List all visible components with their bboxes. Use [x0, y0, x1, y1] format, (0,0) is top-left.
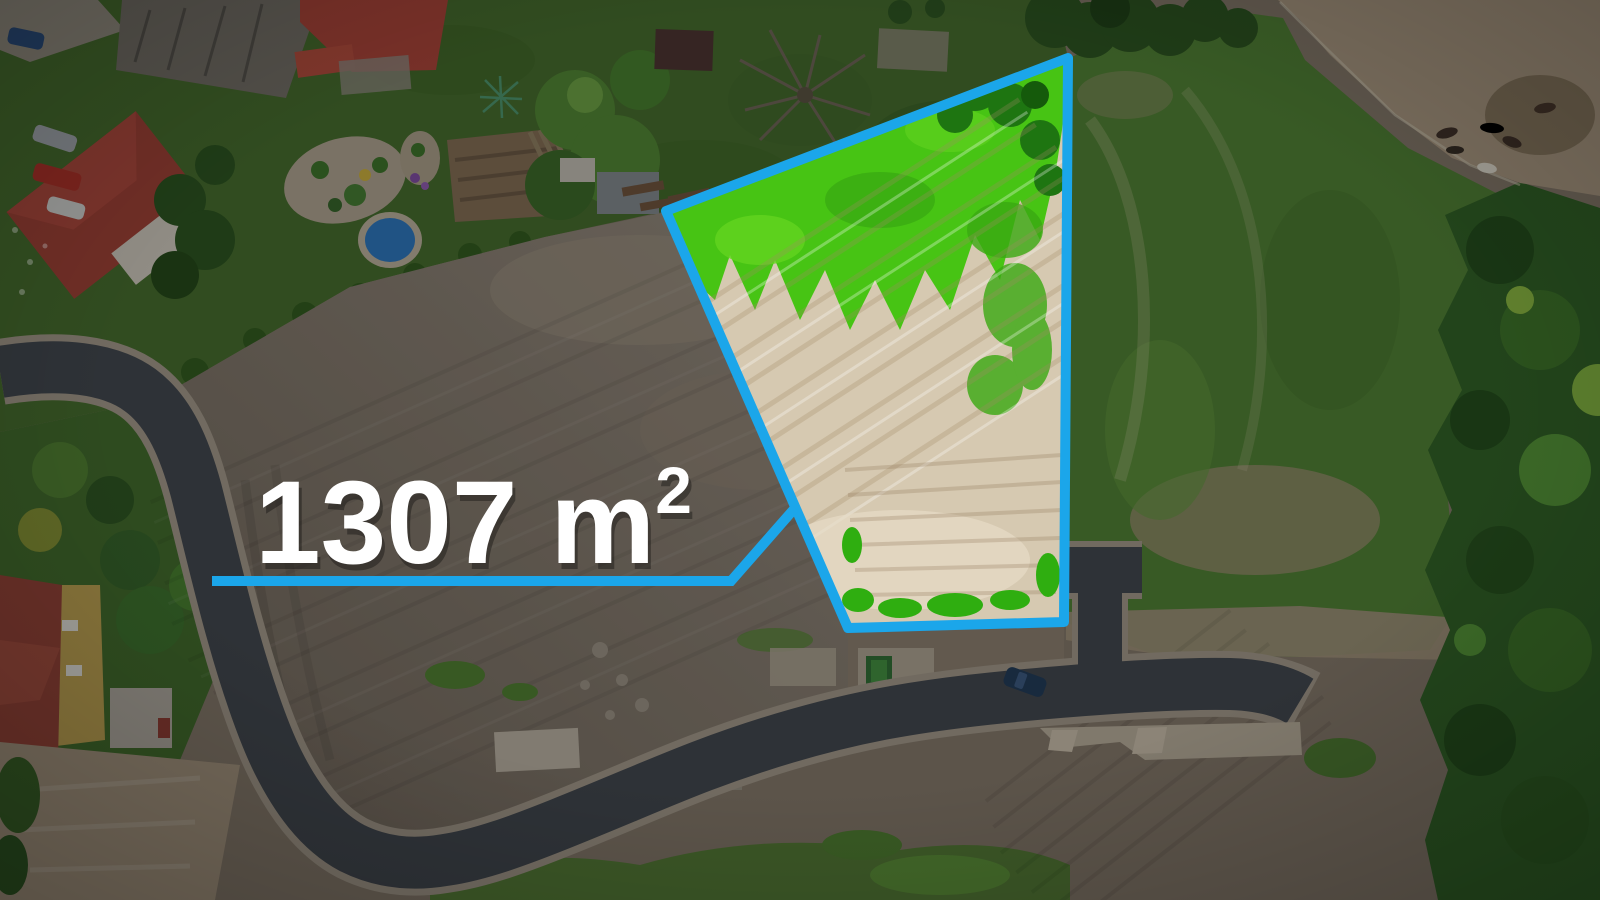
vignette: [0, 0, 1600, 900]
aerial-photo: 1307 m2 1307 m2: [0, 0, 1600, 900]
land-plot-listing-photo: 1307 m2 1307 m2: [0, 0, 1600, 900]
area-label: 1307 m2: [255, 453, 692, 589]
